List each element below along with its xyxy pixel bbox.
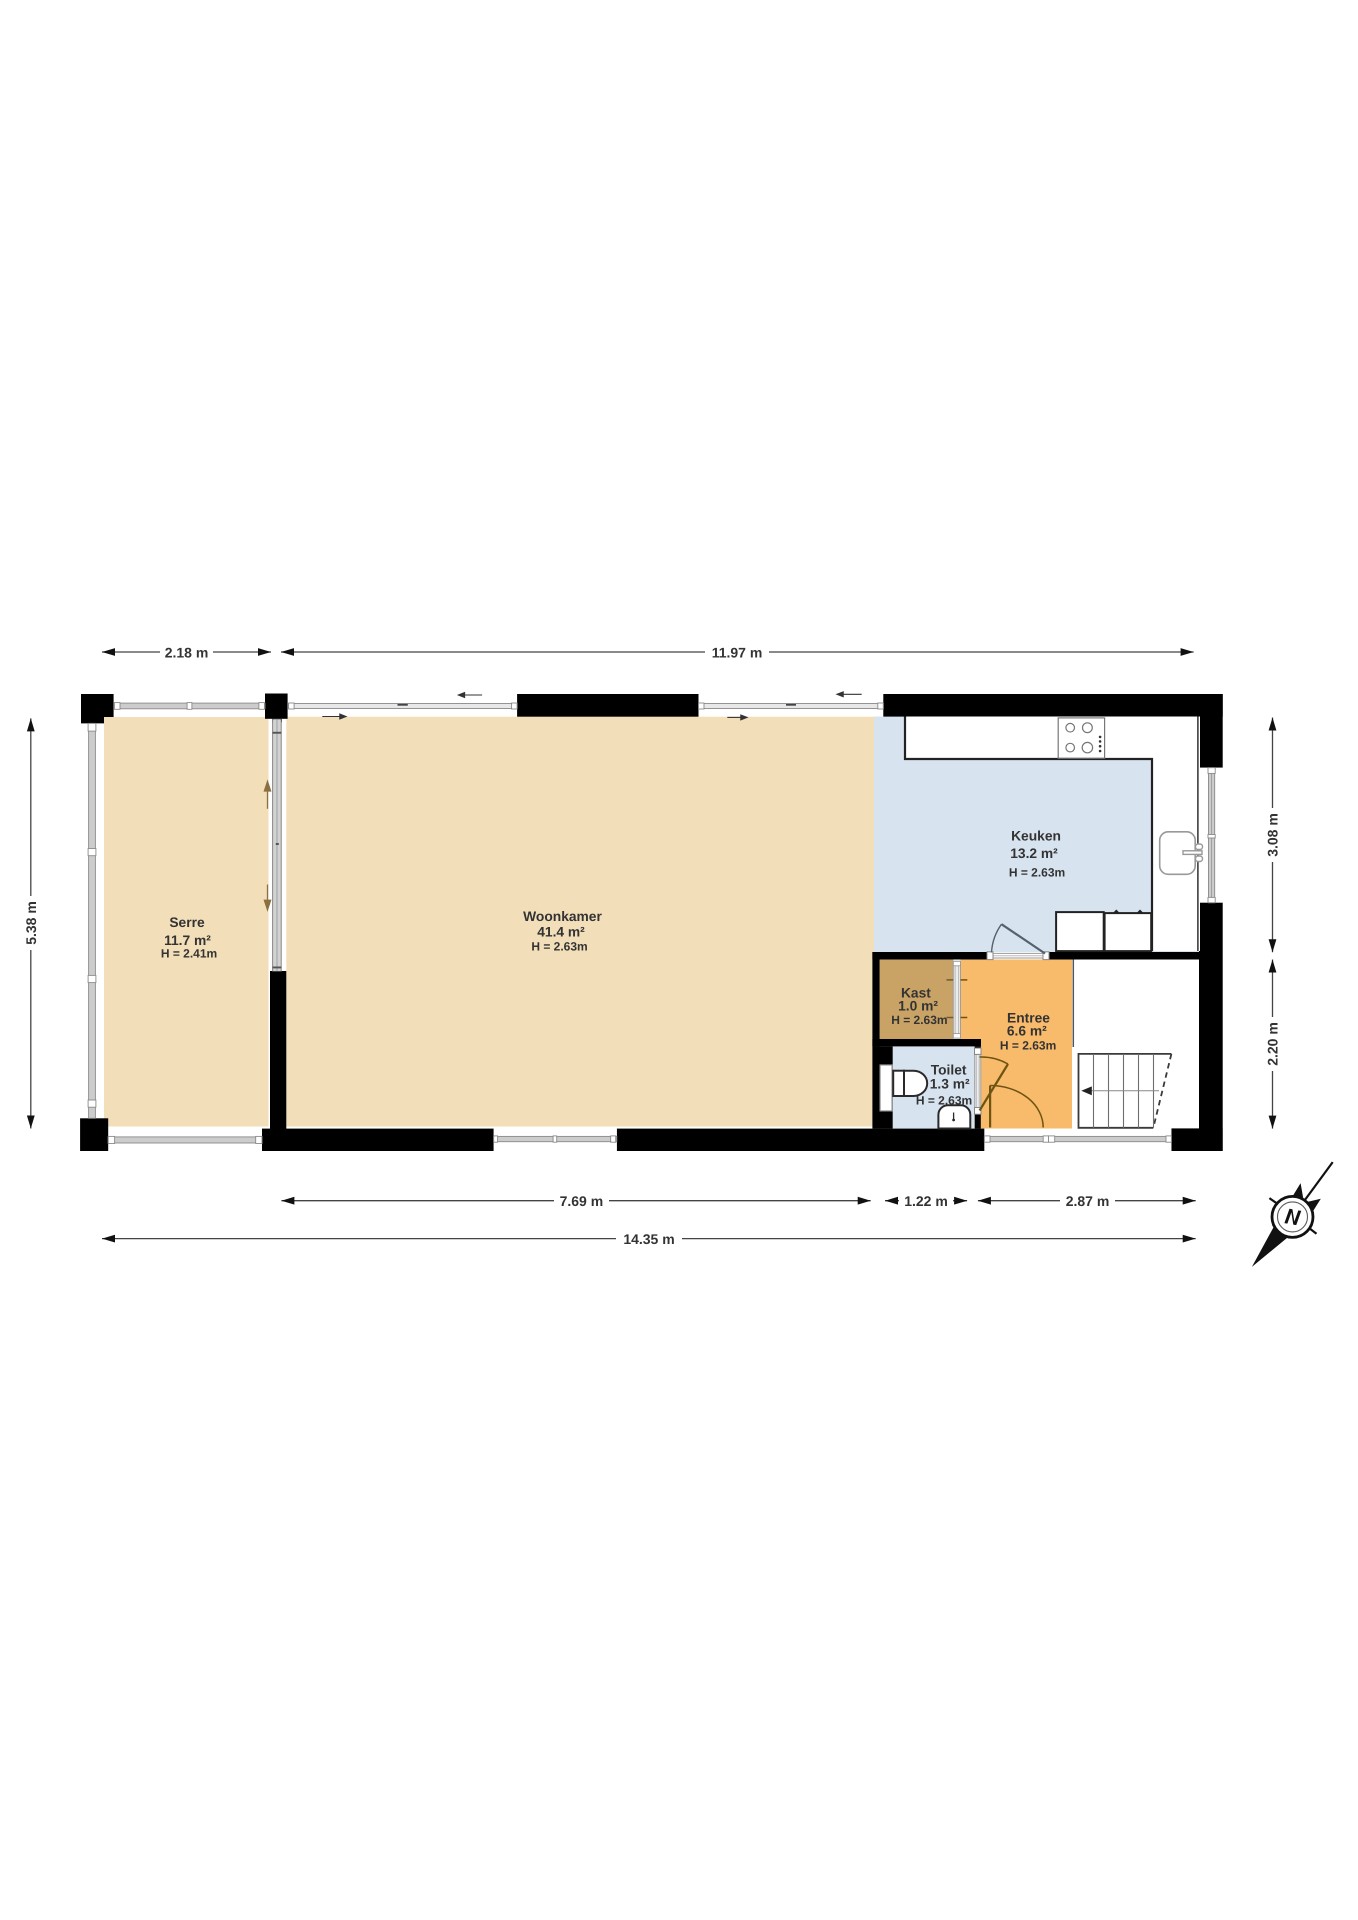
svg-text:3.08 m: 3.08 m xyxy=(1265,813,1281,857)
svg-text:1.0 m²: 1.0 m² xyxy=(898,999,938,1014)
svg-text:1.3 m²: 1.3 m² xyxy=(930,1077,970,1092)
svg-text:2.18 m: 2.18 m xyxy=(165,645,209,661)
svg-text:6.6 m²: 6.6 m² xyxy=(1007,1023,1047,1038)
svg-text:H = 2.63m: H = 2.63m xyxy=(1000,1038,1056,1052)
svg-text:13.2 m²: 13.2 m² xyxy=(1010,846,1058,861)
svg-text:14.35 m: 14.35 m xyxy=(623,1231,674,1247)
svg-text:2.20 m: 2.20 m xyxy=(1265,1022,1281,1066)
svg-text:1.22 m: 1.22 m xyxy=(904,1193,948,1209)
svg-text:2.87 m: 2.87 m xyxy=(1066,1193,1110,1209)
svg-text:H = 2.63m: H = 2.63m xyxy=(531,939,587,953)
svg-text:Toilet: Toilet xyxy=(931,1062,967,1077)
svg-text:Woonkamer: Woonkamer xyxy=(523,909,602,924)
svg-text:41.4 m²: 41.4 m² xyxy=(537,925,585,940)
svg-text:11.97 m: 11.97 m xyxy=(712,645,763,661)
svg-text:H = 2.41m: H = 2.41m xyxy=(161,947,217,961)
svg-text:H = 2.63m: H = 2.63m xyxy=(916,1093,972,1107)
svg-text:H = 2.63m: H = 2.63m xyxy=(1009,865,1065,879)
svg-text:Keuken: Keuken xyxy=(1011,828,1061,843)
svg-text:5.38 m: 5.38 m xyxy=(23,901,39,945)
svg-text:7.69 m: 7.69 m xyxy=(560,1193,604,1209)
svg-text:Serre: Serre xyxy=(169,915,205,930)
svg-text:H = 2.63m: H = 2.63m xyxy=(891,1013,947,1027)
